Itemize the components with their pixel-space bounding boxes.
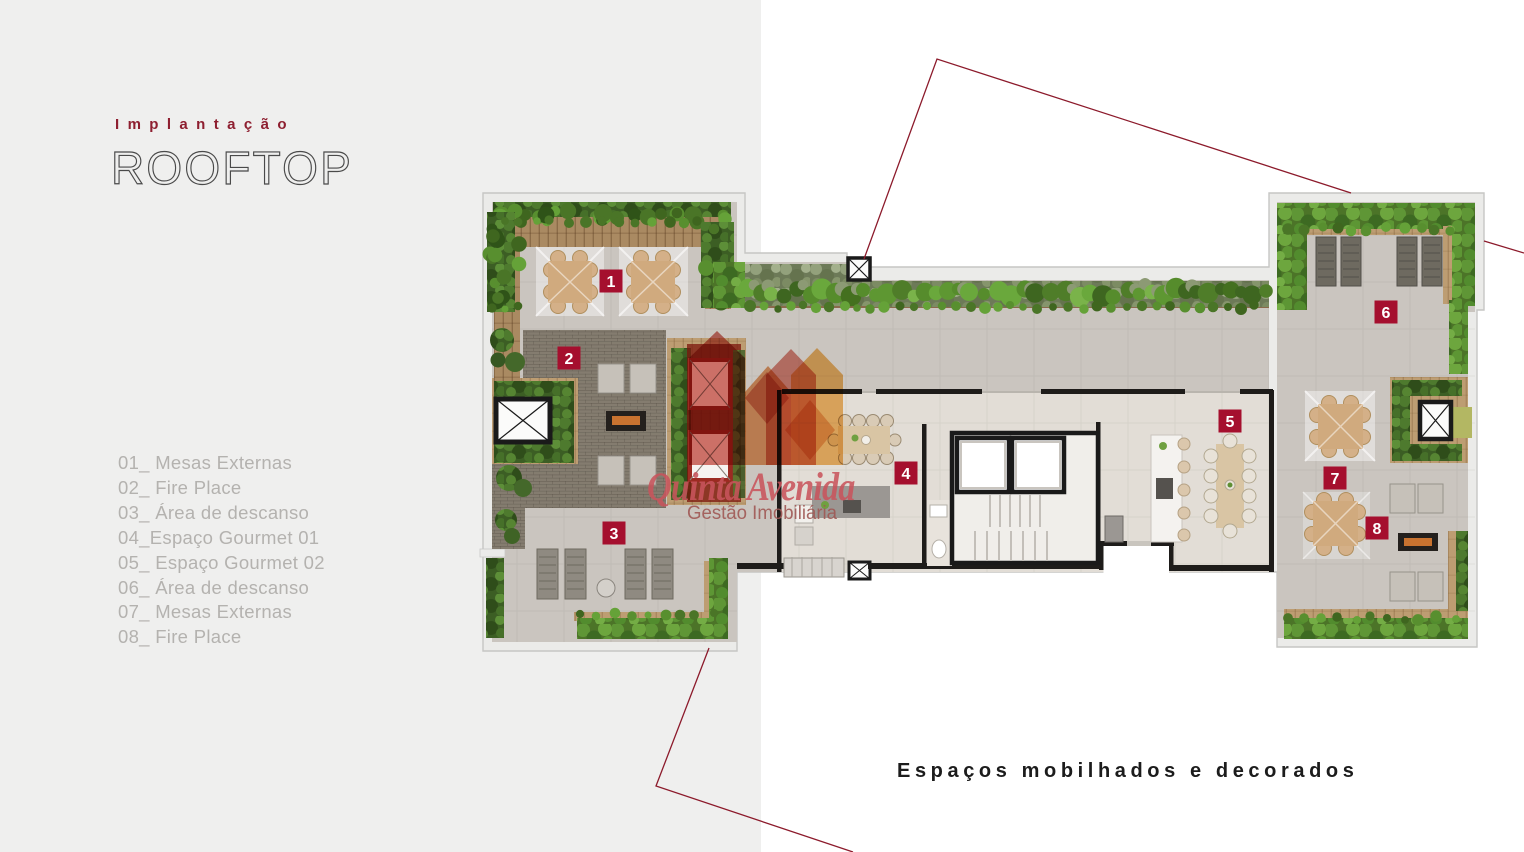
svg-text:8: 8 [1373,521,1382,538]
svg-text:3: 3 [610,526,619,543]
svg-text:6: 6 [1382,305,1391,322]
svg-text:2: 2 [565,351,574,368]
svg-text:5: 5 [1226,414,1235,431]
svg-text:Gestão Imobiliária: Gestão Imobiliária [687,503,837,524]
svg-text:7: 7 [1331,471,1340,488]
svg-text:4: 4 [902,466,911,483]
svg-text:1: 1 [607,274,616,291]
